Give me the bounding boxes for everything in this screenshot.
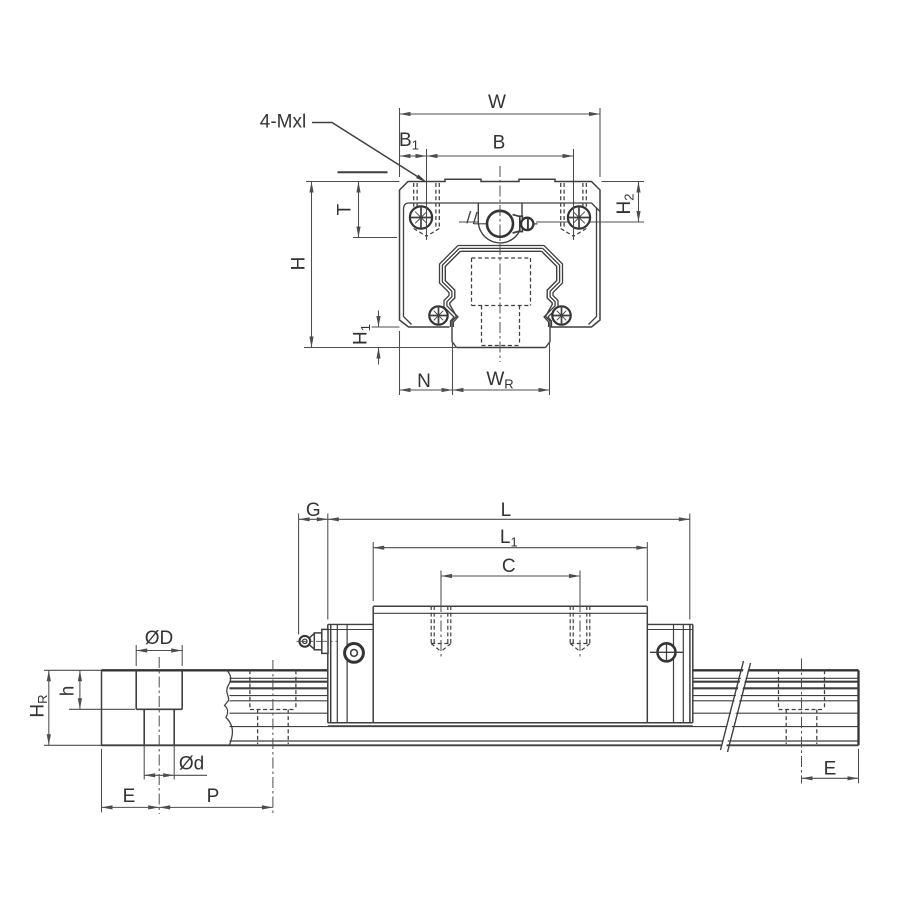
svg-text:4-Mxl: 4-Mxl — [260, 111, 306, 132]
svg-text:B: B — [493, 132, 506, 153]
svg-text:H1: H1 — [350, 324, 372, 345]
svg-text:ØD: ØD — [145, 628, 174, 649]
svg-text:H2: H2 — [614, 194, 636, 215]
svg-text:N: N — [417, 371, 431, 392]
svg-text:L: L — [501, 500, 512, 521]
svg-text:E: E — [123, 786, 136, 807]
svg-text:H: H — [288, 257, 309, 271]
svg-text:Ød: Ød — [179, 753, 204, 774]
svg-text:E: E — [824, 758, 837, 779]
svg-text:h: h — [57, 686, 78, 697]
svg-text:G: G — [306, 500, 321, 521]
svg-text:L1: L1 — [500, 527, 518, 549]
svg-text:WR: WR — [486, 369, 513, 391]
svg-text:C: C — [502, 556, 516, 577]
svg-text:P: P — [207, 786, 220, 807]
svg-text:T: T — [334, 203, 355, 215]
svg-text:W: W — [488, 92, 506, 113]
svg-text:B1: B1 — [399, 130, 419, 152]
svg-text:HR: HR — [27, 694, 49, 717]
